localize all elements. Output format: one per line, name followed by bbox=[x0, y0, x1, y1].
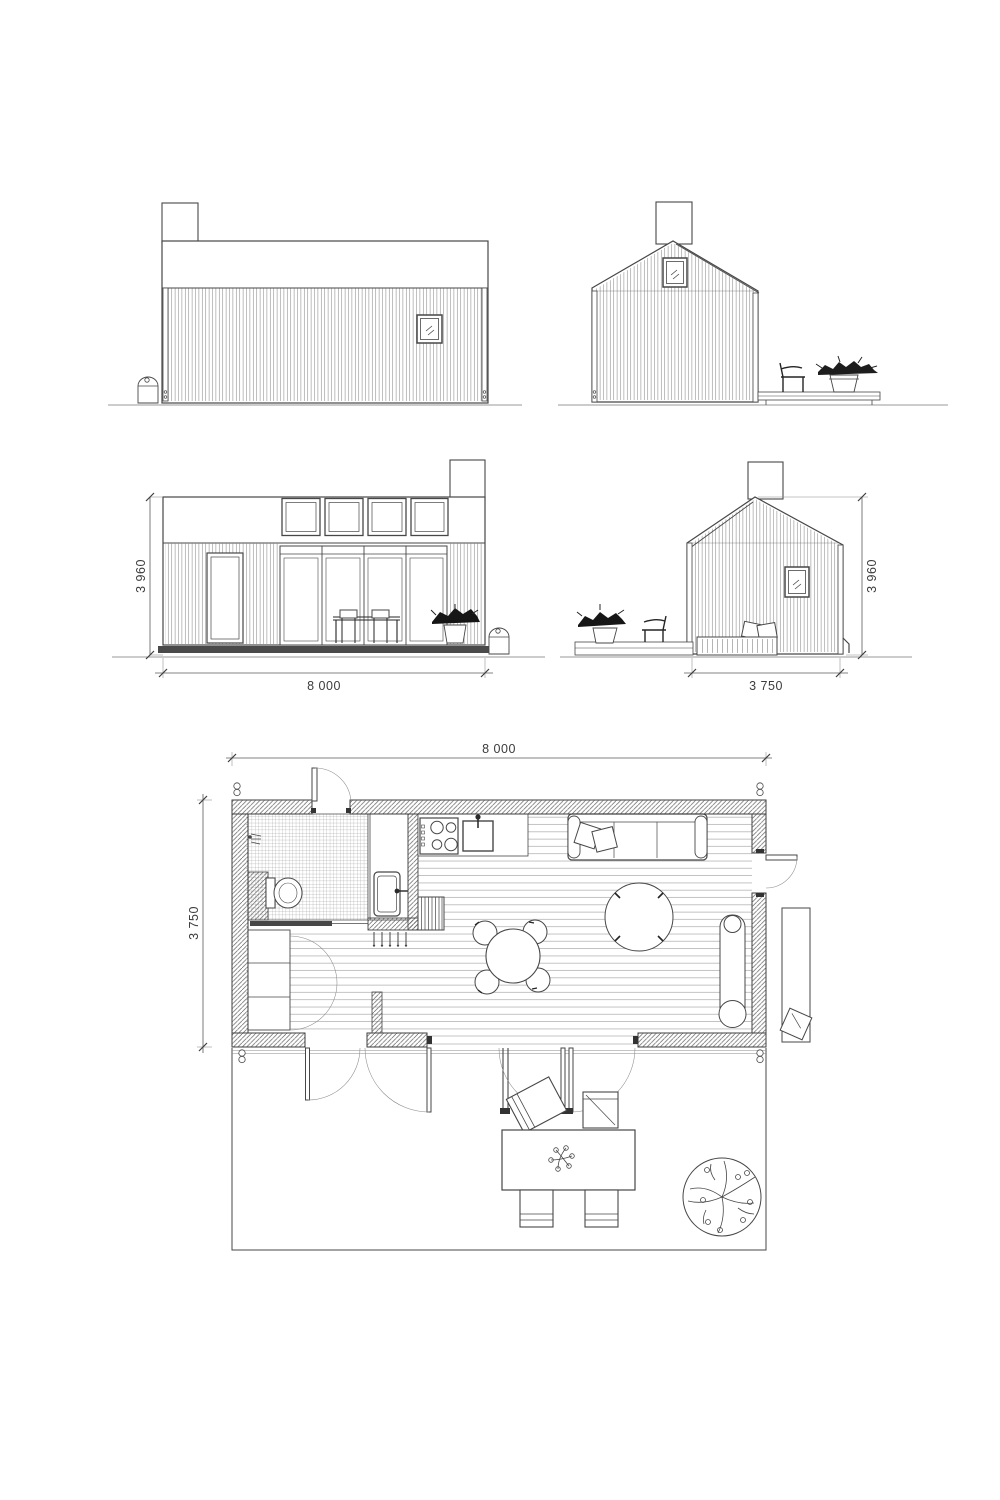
plan-depth-label: 3 750 bbox=[187, 906, 201, 940]
kitchen-partition-wall bbox=[408, 814, 418, 930]
entry-door bbox=[207, 553, 243, 643]
pillow bbox=[592, 827, 617, 852]
corner-post bbox=[687, 543, 692, 654]
potted-plant bbox=[816, 356, 878, 392]
plan-width-dimension: 8 000 bbox=[226, 742, 772, 766]
window-icon bbox=[663, 258, 687, 287]
kitchen-counter bbox=[418, 814, 528, 856]
architectural-drawing-sheet: 3 960 8 000 3 960 bbox=[0, 0, 1000, 1500]
siding bbox=[164, 288, 486, 401]
front-elevation-view: 3 960 8 000 bbox=[112, 460, 545, 693]
deck-side bbox=[575, 642, 693, 655]
loft-ladder bbox=[418, 897, 444, 930]
width-dimension: 8 000 bbox=[155, 658, 493, 693]
plumbing-wall bbox=[248, 872, 268, 920]
side-gable-elevation-view: 3 960 3 750 bbox=[560, 462, 912, 693]
width-dimension: 3 750 bbox=[684, 658, 848, 693]
window-icon bbox=[785, 567, 809, 597]
chimney bbox=[748, 462, 783, 499]
width-dim-label: 3 750 bbox=[749, 679, 783, 693]
corner-post bbox=[838, 545, 843, 654]
potted-plant bbox=[577, 604, 626, 643]
dining-table bbox=[486, 929, 540, 983]
rear-gable-elevation-view bbox=[558, 202, 948, 405]
rolled-mat bbox=[719, 915, 746, 1028]
corner-post bbox=[592, 291, 597, 402]
tree-icon bbox=[683, 1158, 761, 1236]
corner-post bbox=[482, 288, 487, 401]
plinth bbox=[158, 646, 492, 653]
round-rug bbox=[605, 883, 673, 951]
outdoor-chair bbox=[583, 1092, 618, 1128]
wall-stub bbox=[372, 992, 382, 1033]
hob-icon bbox=[420, 818, 458, 854]
outdoor-table bbox=[502, 1130, 635, 1190]
plan-width-label: 8 000 bbox=[482, 742, 516, 756]
height-dim-label: 3 960 bbox=[865, 559, 879, 593]
outdoor-chair bbox=[780, 363, 805, 392]
drawing-canvas: 3 960 8 000 3 960 bbox=[0, 0, 1000, 1500]
water-butt bbox=[489, 628, 509, 654]
glazed-doors bbox=[280, 546, 447, 645]
bathroom-wall bbox=[368, 918, 418, 930]
height-dimension: 3 960 bbox=[134, 493, 163, 659]
width-dim-label: 8 000 bbox=[307, 679, 341, 693]
corner-post bbox=[753, 293, 758, 402]
plan-depth-dimension: 3 750 bbox=[187, 794, 212, 1053]
side-elevation-view bbox=[108, 203, 522, 405]
entrance-door bbox=[311, 768, 351, 813]
window-icon bbox=[417, 315, 442, 343]
chimney bbox=[162, 203, 198, 243]
water-butt bbox=[138, 377, 158, 403]
toilet-icon bbox=[266, 878, 302, 908]
downpipe bbox=[843, 638, 849, 653]
floor-plan-view: 8 000 3 750 bbox=[187, 742, 812, 1250]
chimney bbox=[450, 460, 485, 499]
outdoor-chair bbox=[520, 1190, 553, 1227]
sofa bbox=[568, 814, 707, 860]
lounge-chair bbox=[506, 1077, 566, 1133]
outdoor-chair bbox=[642, 616, 666, 642]
sliding-door bbox=[250, 921, 332, 926]
bathroom bbox=[248, 814, 418, 930]
chimney bbox=[656, 202, 692, 244]
side-door bbox=[756, 849, 797, 897]
storage-bench bbox=[780, 908, 812, 1042]
deck-side bbox=[758, 392, 880, 405]
corner-post bbox=[163, 288, 168, 401]
height-dim-label: 3 960 bbox=[134, 559, 148, 593]
outdoor-chair bbox=[585, 1190, 618, 1227]
deck-outline bbox=[232, 1048, 766, 1250]
